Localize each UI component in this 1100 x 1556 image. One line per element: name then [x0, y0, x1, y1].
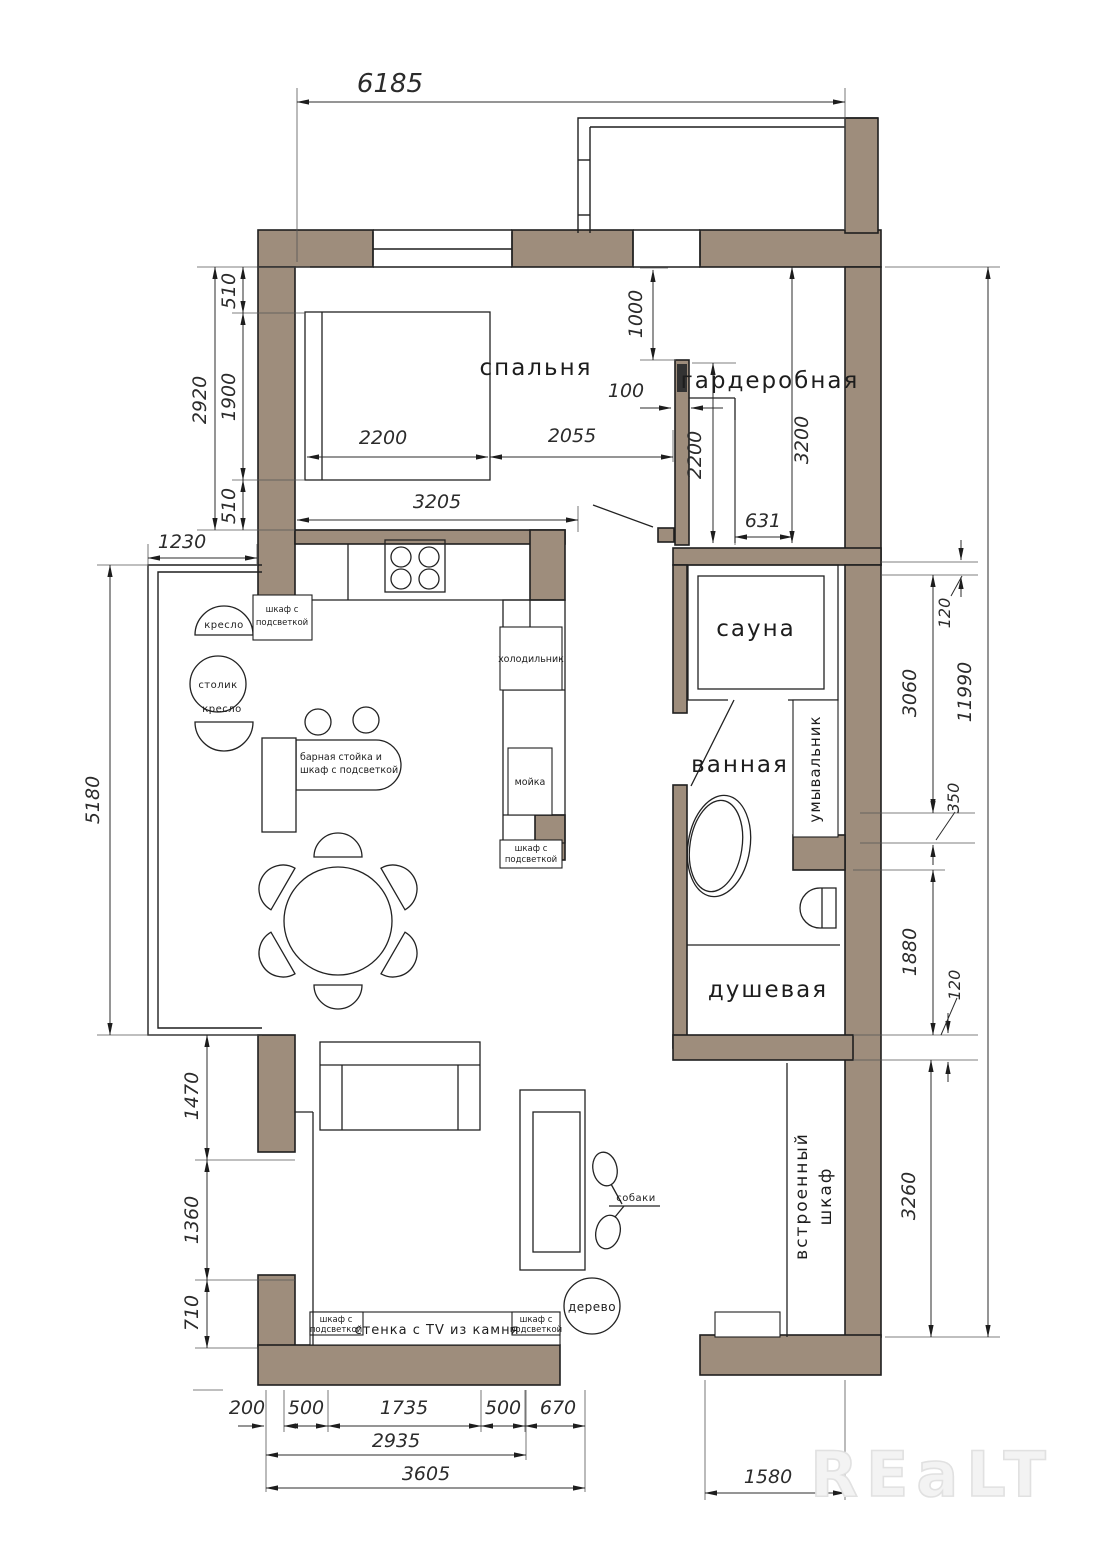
dim-sauna-zone: 3060 — [899, 669, 921, 717]
chair — [250, 856, 295, 910]
label-builtin-1: встроенный — [792, 1132, 812, 1260]
chair — [381, 856, 426, 910]
burner-icon — [391, 547, 411, 567]
label-bathroom: ванная — [691, 752, 789, 778]
dim-bay-offset: 1230 — [158, 531, 206, 553]
bar-stool — [305, 709, 331, 735]
dim-bottom-seg1: 200 — [229, 1397, 265, 1419]
dim-bottom-seg4: 500 — [485, 1397, 521, 1419]
dim-bed-length: 1900 — [218, 373, 240, 421]
label-side-table: столик — [198, 680, 237, 691]
label-armchair-top: кресло — [204, 620, 244, 631]
label-cabinet-4a: шкаф с — [520, 1315, 553, 1325]
label-cabinet-3a: шкаф с — [320, 1315, 353, 1325]
dim-ward-width: 631 — [745, 510, 781, 532]
armchair — [195, 722, 253, 751]
dim-living-seg1: 1470 — [181, 1072, 203, 1120]
label-shower: душевая — [708, 977, 828, 1003]
balcony-frame — [578, 118, 878, 233]
bedroom-door-swing — [593, 505, 653, 527]
dim-bottom-seg2: 500 — [288, 1397, 324, 1419]
dim-bottom-total: 3605 — [402, 1463, 450, 1485]
dim-bed-offset-top: 510 — [218, 273, 240, 309]
burner-icon — [419, 569, 439, 589]
label-bar-1: барная стойка и — [300, 752, 382, 763]
burner-icon — [391, 569, 411, 589]
label-sink: мойка — [515, 777, 546, 788]
label-tree: дерево — [568, 1300, 616, 1314]
dog-bed — [590, 1150, 621, 1188]
label-cabinet-2b: подсветкой — [505, 855, 557, 865]
dim-bottom-seg5: 670 — [540, 1397, 576, 1419]
dim-right-total: 11990 — [954, 662, 976, 722]
dim-wall-thick-b: 120 — [945, 970, 964, 1001]
dim-living-seg3: 710 — [181, 1295, 203, 1331]
dim-bedroom-width: 3205 — [413, 491, 461, 513]
dim-ward-inner: 2200 — [684, 431, 706, 479]
dim-bay-height: 5180 — [82, 776, 104, 824]
bed — [305, 312, 490, 480]
label-armchair-bottom: кресло — [202, 704, 242, 715]
dim-niche-depth: 350 — [944, 783, 963, 814]
label-wardrobe: гардеробная — [681, 368, 860, 394]
label-cabinet-4b: подсветкой — [510, 1325, 562, 1335]
dim-bedroom-height: 2920 — [189, 376, 211, 424]
label-cabinet-1a: шкаф с — [266, 605, 299, 615]
bar-stool — [353, 707, 379, 733]
chair — [381, 932, 426, 986]
label-bar-2: шкаф с подсветкой — [300, 765, 398, 776]
stove — [385, 540, 445, 592]
dim-ward-offset: 1000 — [625, 290, 647, 338]
label-cabinet-2a: шкаф с — [515, 844, 548, 854]
toilet — [800, 888, 836, 928]
dim-bed-to-wall: 2055 — [548, 425, 596, 447]
dim-bottom-seg3: 1735 — [380, 1397, 428, 1419]
dining-table — [284, 867, 392, 975]
dim-bed-width: 2200 — [359, 427, 407, 449]
dim-ward-height: 3200 — [791, 416, 813, 464]
sofa — [320, 1042, 480, 1130]
label-builtin-2: шкаф — [816, 1167, 836, 1226]
dim-wall-thick-a: 120 — [935, 598, 954, 629]
label-tv-wall: стенка с TV из камня — [355, 1323, 520, 1338]
watermark: REaLT — [810, 1438, 1053, 1511]
burner-icon — [419, 547, 439, 567]
dim-closet-zone: 3260 — [898, 1172, 920, 1220]
label-sauna: сауна — [716, 616, 795, 642]
dim-bed-offset-bottom: 510 — [218, 488, 240, 524]
floor-plan-page: 6185 2920 510 1900 510 1230 5180 1470 13… — [0, 0, 1100, 1556]
label-washbasin: умывальник — [806, 715, 824, 822]
label-dogs: собаки — [616, 1193, 655, 1204]
dim-living-seg2: 1360 — [181, 1196, 203, 1244]
dim-bottom-right: 1580 — [744, 1466, 792, 1488]
floor-plan-drawing: 6185 2920 510 1900 510 1230 5180 1470 13… — [0, 0, 1100, 1556]
label-cabinet-1b: подсветкой — [256, 618, 308, 628]
dim-shower-zone: 1880 — [899, 928, 921, 976]
bathtub — [680, 791, 757, 901]
dim-bottom-sub: 2935 — [372, 1430, 420, 1452]
label-fridge: холодильник — [498, 654, 564, 665]
dog-bed — [592, 1213, 624, 1252]
chair — [314, 985, 362, 1009]
dim-ward-gap: 100 — [608, 380, 644, 402]
sofa-2 — [520, 1090, 585, 1270]
chair — [250, 932, 295, 986]
label-bedroom: спальня — [480, 355, 593, 381]
dim-top-width: 6185 — [357, 69, 423, 99]
chair — [314, 833, 362, 857]
